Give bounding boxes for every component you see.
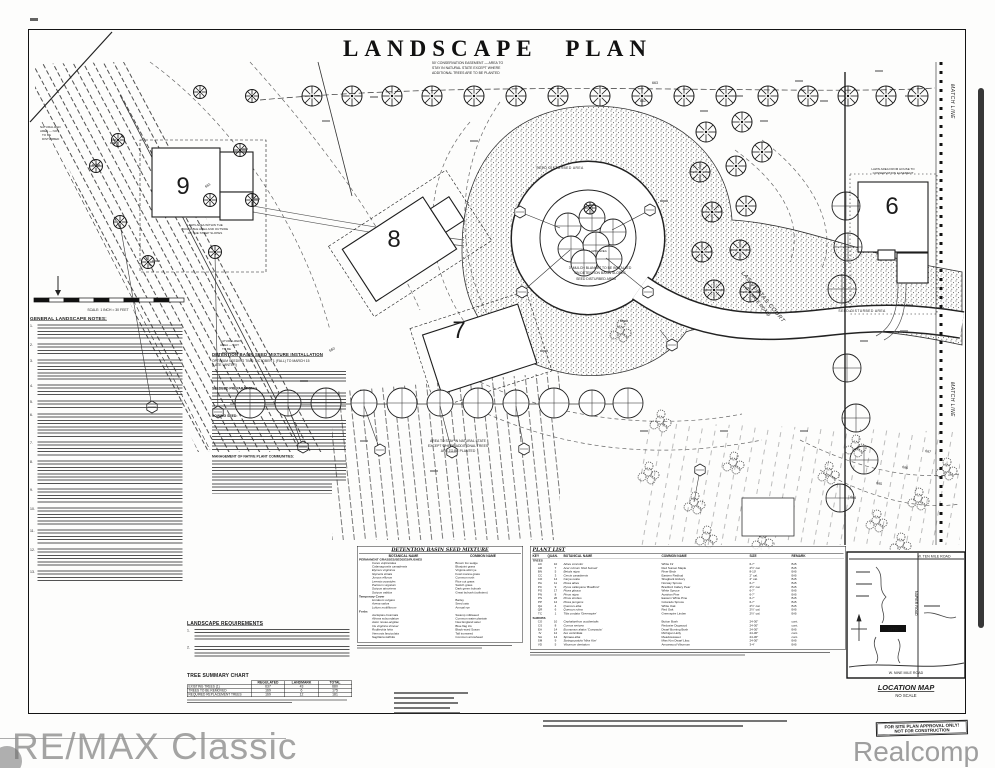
general-note-item: 11. (30, 530, 186, 545)
tree-tag-label (875, 70, 883, 72)
tree-tag-label (110, 142, 118, 144)
basin-notes-heading: DETENTION BASIN SEED MIXTURE INSTALLATIO… (212, 352, 352, 357)
landscape-requirements-heading: LANDSCAPE REQUIREMENTS (187, 621, 357, 627)
svg-text:SEED DISTURBED AREA: SEED DISTURBED AREA (576, 277, 616, 281)
plant-key-tag (515, 206, 525, 218)
landscape-requirement-item: 1. (187, 629, 357, 642)
tree-tag-label (620, 320, 628, 322)
evergreen-tree-symbol (506, 86, 526, 106)
tree-symbol (828, 275, 856, 303)
evergreen-tree-symbol (632, 86, 652, 106)
scale-bar-segment (49, 298, 64, 302)
scan-artifact-topmark (30, 18, 38, 21)
tree-symbol (555, 213, 581, 239)
general-note-item: 4. (30, 385, 186, 397)
evergreen-tree-symbol (464, 86, 484, 106)
seed-disturbed-label: SEED DISTURBED AREA (536, 166, 584, 170)
lot-number-9: 9 (176, 173, 189, 200)
evergreen-tree-symbol (704, 280, 724, 300)
tree-tag-label (240, 148, 248, 150)
seed-mix-tally (394, 690, 474, 714)
svg-text:50' CONSERVATION EASEMENT — AR: 50' CONSERVATION EASEMENT — AREA TO (432, 61, 503, 65)
subhead-management: MANAGEMENT OF NATIVE PLANT COMMUNITIES: (212, 455, 352, 459)
tree-symbol (503, 390, 529, 416)
tree-symbol (842, 404, 870, 432)
plant-list-column-header: KEY (533, 555, 548, 559)
general-note-item: 10. (30, 508, 186, 526)
basin-notes-paragraph (212, 420, 346, 452)
lot-number-8: 8 (387, 226, 400, 253)
seeding-time-line2: (LATE WINTER) (212, 364, 352, 368)
tree-symbol (613, 388, 643, 418)
scale-bar-segment (79, 298, 94, 302)
location-map-caption: LOCATION MAP (878, 683, 935, 692)
landscape-requirements: LANDSCAPE REQUIREMENTS 1.2. (187, 621, 357, 673)
tree-summary-chart: TREE SUMMARY CHART REGULATEDLANDMARKTOTA… (187, 673, 357, 733)
scale-text: SCALE: 1 INCH = 30 FEET (87, 308, 128, 312)
tree-symbol (850, 446, 878, 474)
tree-tag-label (735, 95, 743, 97)
svg-text:OF THE STEEP SLOPES: OF THE STEEP SLOPES (188, 231, 222, 235)
tree-symbol (539, 388, 569, 418)
plant-key-tag (667, 339, 677, 351)
landscape-requirement-item: 2. (187, 646, 357, 659)
basin-notes-paragraph (212, 484, 332, 494)
tree-tag-label (860, 340, 868, 342)
evergreen-tree-symbol (246, 90, 259, 103)
svg-text:MATCH LINE: MATCH LINE (949, 382, 955, 417)
scale-bar-segment (139, 298, 154, 302)
svg-text:STAY IN NATURAL STATE EXCEPT W: STAY IN NATURAL STATE EXCEPT WHERE (432, 66, 501, 70)
lot-number-7: 7 (452, 317, 465, 344)
evergreen-tree-symbol (716, 86, 736, 106)
seed-col-common: COMMON NAME (448, 555, 518, 559)
tree-tag-label (370, 96, 378, 98)
svg-text:3" MULCH BLANKET TO BE INSTALL: 3" MULCH BLANKET TO BE INSTALLED (569, 266, 632, 270)
evergreen-tree-symbol (382, 86, 402, 106)
svg-text:ON DETENTION BASIN SLOPES: ON DETENTION BASIN SLOPES (574, 271, 626, 275)
tree-symbol (579, 390, 605, 416)
lot-number-6: 6 (885, 193, 898, 220)
evergreen-tree-symbol (112, 134, 125, 147)
match-line-labels: MATCH LINE MATCH LINE (949, 84, 955, 417)
evergreen-tree-symbol (584, 202, 596, 214)
seed-table-footnote (357, 645, 512, 646)
plant-list-column-header: QUAN. (548, 555, 564, 559)
plant-list-footnote (530, 655, 745, 656)
tree-tag-label (720, 430, 728, 432)
tree-tag-label (92, 164, 100, 166)
tree-symbol (833, 354, 861, 382)
svg-text:DISTURBED: DISTURBED (42, 137, 60, 141)
svg-text:MATCH LINE: MATCH LINE (949, 84, 955, 119)
napier-road-label: NAPIER ROAD (914, 591, 918, 616)
bottom-notes (543, 720, 793, 727)
location-map: SITE W. TEN MILE ROAD W. NINE MILE ROAD … (846, 551, 968, 701)
tree-tag-label (700, 110, 708, 112)
general-note-item: 5. (30, 401, 186, 410)
ten-mile-road-label: W. TEN MILE ROAD (917, 555, 950, 559)
plant-key-tag (519, 443, 529, 455)
plant-list-column-header: COMMON NAME (662, 555, 750, 559)
general-note-item: 1. (30, 325, 186, 340)
plant-list-column-header: BOTANICAL NAME (564, 555, 662, 559)
tree-tag-label (760, 120, 768, 122)
tree-tag-label (360, 440, 368, 442)
evergreen-tree-symbol (736, 196, 756, 216)
evergreen-tree-symbol (194, 86, 207, 99)
scale-bar-segment (94, 298, 109, 302)
tree-symbol (463, 388, 493, 418)
evergreen-tree-symbol (548, 86, 568, 106)
general-note-item: 6. (30, 414, 186, 438)
evergreen-tree-symbol (838, 86, 858, 106)
tree-summary-row: REQUIRED REPLACEMENT TREES16912181 (187, 693, 352, 697)
tree-summary-heading: TREE SUMMARY CHART (187, 673, 357, 679)
lot9-lawn-note: LAWN AREA WITHIN THE BUILDABLE AREA AND … (182, 223, 228, 235)
lawn-area-lot6: LAWN AREA (896, 303, 913, 307)
subhead-seedbed: SEEDBED PREPARATION: (212, 387, 352, 391)
scale-bar-segment (154, 298, 169, 302)
watermark-remax: RE/MAX Classic (12, 726, 297, 768)
plant-list-title: PLANT LIST (533, 547, 844, 554)
evergreen-tree-symbol (690, 162, 710, 182)
tree-symbol (351, 390, 377, 416)
evergreen-tree-symbol (758, 86, 778, 106)
general-note-item: 13. (30, 571, 186, 583)
plant-list-column-header: SIZE (750, 555, 792, 559)
scale-bar-segment (64, 298, 79, 302)
evergreen-tree-symbol (422, 86, 442, 106)
plant-list-row: TC1Tilia cordata 'Greenspire'Greenspire … (533, 612, 844, 616)
tree-tag-label (640, 430, 648, 432)
seed-table-row: Sagittaria latifoliaCommon arrowhead (359, 636, 521, 640)
tree-tag-label (900, 330, 908, 332)
evergreen-tree-symbol (798, 86, 818, 106)
tree-tag-label (800, 430, 808, 432)
svg-text:CONSERVATION EASEMENT: CONSERVATION EASEMENT (873, 171, 914, 175)
plant-list-footnote (530, 652, 830, 653)
plant-key-tag (645, 204, 655, 216)
evergreen-tree-symbol (702, 202, 722, 222)
tree-symbol (387, 388, 417, 418)
plant-list-row: VD5Viburnum dentatumArrowwood Viburnum3-… (533, 643, 844, 647)
evergreen-tree-symbol (876, 86, 896, 106)
tree-tag-label (152, 260, 160, 262)
plant-list-table: PLANT LIST KEYQUAN.BOTANICAL NAMECOMMON … (530, 546, 846, 666)
tree-tag-label (905, 95, 913, 97)
scale-bar-segment (34, 298, 49, 302)
general-note-item: 9. (30, 489, 186, 504)
tree-tag-label (795, 80, 803, 82)
plant-key-tag (517, 286, 527, 298)
evergreen-tree-symbol (674, 86, 694, 106)
tree-tag-label (470, 140, 478, 142)
evergreen-tree-symbol (590, 86, 610, 106)
tree-symbol (834, 233, 862, 261)
scale-bar-segment (124, 298, 139, 302)
tree-tag-label (540, 350, 548, 352)
scale-bar-segment (169, 298, 184, 302)
evergreen-tree-symbol (204, 194, 217, 207)
lot6-lawn-note: LAWN AREA FROM HOUSE TO CONSERVATION EAS… (871, 167, 915, 175)
basin-notes-paragraph (212, 461, 346, 481)
evergreen-tree-symbol (726, 156, 746, 176)
evergreen-tree-symbol (114, 216, 127, 229)
svg-text:ARE TO BE PLANTED: ARE TO BE PLANTED (441, 449, 476, 453)
general-notes-heading: GENERAL LANDSCAPE NOTES: (30, 316, 186, 322)
tree-tag-label (660, 200, 668, 202)
evergreen-tree-symbol (342, 86, 362, 106)
general-note-item: 7. (30, 442, 186, 457)
seed-mixture-table: DETENTION BASIN SEED MIXTURE BOTANICAL N… (357, 546, 523, 666)
plant-key-tag (695, 464, 705, 476)
conservation-easement-note: 50' CONSERVATION EASEMENT — AREA TO STAY… (432, 61, 503, 75)
contour-label: 662 (640, 99, 646, 103)
evergreen-tree-symbol (752, 142, 772, 162)
plant-key-tag (375, 444, 385, 456)
general-note-item: 12. (30, 549, 186, 567)
seed-table-row: Lolium multiflorumAnnual rye (359, 606, 521, 610)
svg-text:AREA TO STAY IN NATURAL STATE: AREA TO STAY IN NATURAL STATE (430, 439, 487, 443)
tree-tag-label (430, 470, 438, 472)
tree-tag-label (252, 198, 260, 200)
svg-text:ADDITIONAL TREES ARE TO BE PLA: ADDITIONAL TREES ARE TO BE PLANTED (432, 71, 500, 75)
contour-label: 663 (652, 81, 658, 85)
evergreen-tree-symbol (696, 122, 716, 142)
tree-summary-footnote (187, 700, 347, 701)
subhead-sowing: SOWING SEED: (212, 415, 352, 419)
seed-disturbed-label-2: SEED DISTURBED AREA (838, 309, 886, 313)
landscape-plan-sheet: LANDSCAPE PLAN (0, 0, 995, 768)
tree-tag-label (322, 120, 330, 122)
evergreen-tree-symbol (302, 86, 322, 106)
tree-summary-footnote (187, 702, 292, 703)
general-note-item: 8. (30, 461, 186, 485)
nine-mile-road-label: W. NINE MILE ROAD (889, 671, 924, 675)
lawn-area-island: LAWN AREA (589, 249, 606, 253)
seed-table-footnote (357, 647, 482, 648)
site-marker-label: SITE (888, 627, 898, 632)
basin-notes-paragraph (212, 371, 346, 384)
scale-bar-segment (109, 298, 124, 302)
tree-symbol (832, 192, 860, 220)
watermark-realcomp: Realcomp (853, 736, 979, 768)
basin-notes-column: DETENTION BASIN SEED MIXTURE INSTALLATIO… (212, 352, 352, 548)
seed-table-title: DETENTION BASIN SEED MIXTURE (359, 547, 521, 554)
evergreen-tree-symbol (732, 112, 752, 132)
evergreen-tree-symbol (730, 240, 750, 260)
scan-artifact-right (978, 88, 984, 628)
general-note-item: 3. (30, 360, 186, 381)
basin-notes-paragraph (212, 393, 346, 412)
tree-tag-label (820, 100, 828, 102)
plant-list-column-header: REMARK (792, 555, 827, 559)
svg-text:EXCEPT WHERE ADDITIONAL TREES: EXCEPT WHERE ADDITIONAL TREES (428, 444, 489, 448)
general-note-item: 2. (30, 344, 186, 356)
general-notes-column: GENERAL LANDSCAPE NOTES: 1.2.3.4.5.6.7.8… (30, 316, 186, 616)
evergreen-tree-symbol (692, 242, 712, 262)
tree-symbol (427, 390, 453, 416)
location-map-scale: NO SCALE (895, 693, 916, 698)
outlet-structure (742, 498, 794, 536)
plant-key-tag (643, 286, 653, 298)
